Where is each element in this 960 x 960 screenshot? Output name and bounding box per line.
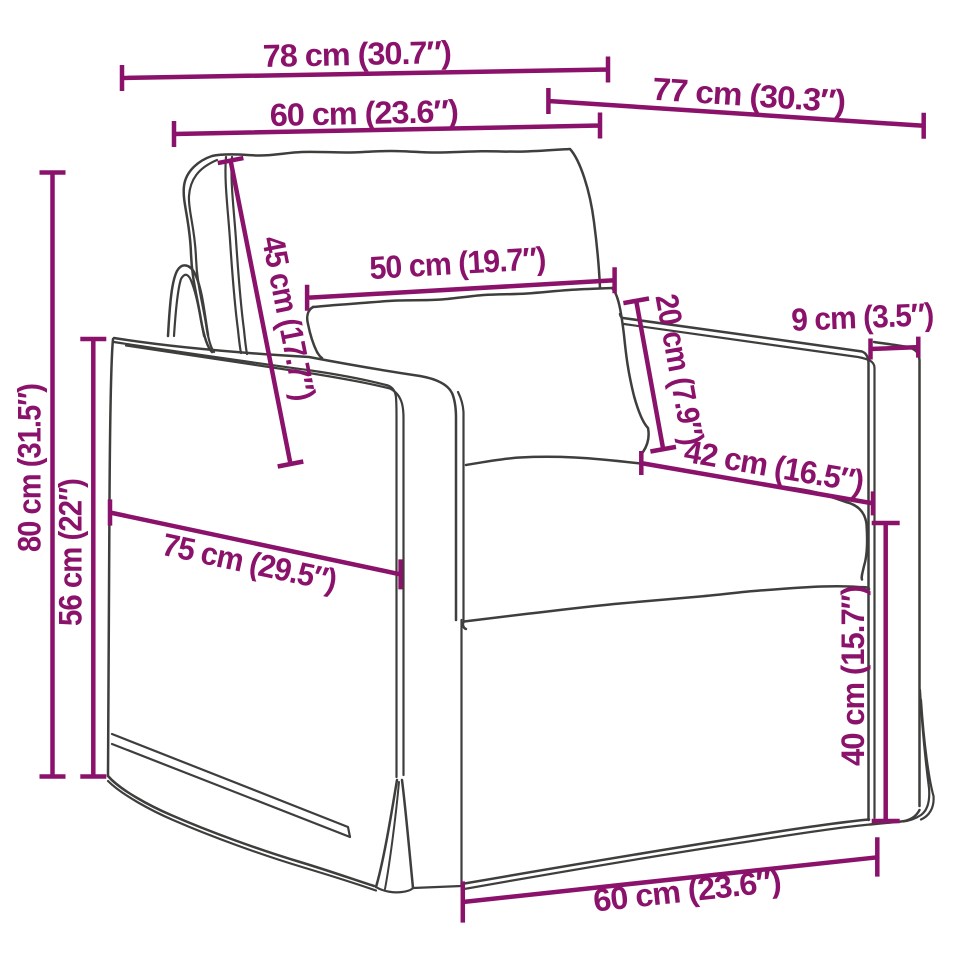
- svg-text:75 cm (29.5″): 75 cm (29.5″): [159, 526, 340, 598]
- svg-text:60 cm (23.6″): 60 cm (23.6″): [269, 93, 458, 133]
- svg-text:77 cm (30.3″): 77 cm (30.3″): [651, 71, 846, 120]
- svg-text:56 cm (22″): 56 cm (22″): [53, 479, 89, 626]
- svg-text:40 cm (15.7″): 40 cm (15.7″): [835, 586, 871, 766]
- svg-text:78 cm (30.7″): 78 cm (30.7″): [262, 34, 451, 74]
- svg-text:80 cm (31.5″): 80 cm (31.5″): [12, 384, 48, 552]
- svg-text:42 cm (16.5″): 42 cm (16.5″): [682, 433, 867, 500]
- svg-text:60 cm (23.6″): 60 cm (23.6″): [591, 862, 782, 918]
- svg-text:50 cm (19.7″): 50 cm (19.7″): [368, 240, 546, 286]
- svg-text:45 cm (17.7″): 45 cm (17.7″): [255, 233, 323, 403]
- svg-text:9 cm (3.5″): 9 cm (3.5″): [791, 296, 935, 338]
